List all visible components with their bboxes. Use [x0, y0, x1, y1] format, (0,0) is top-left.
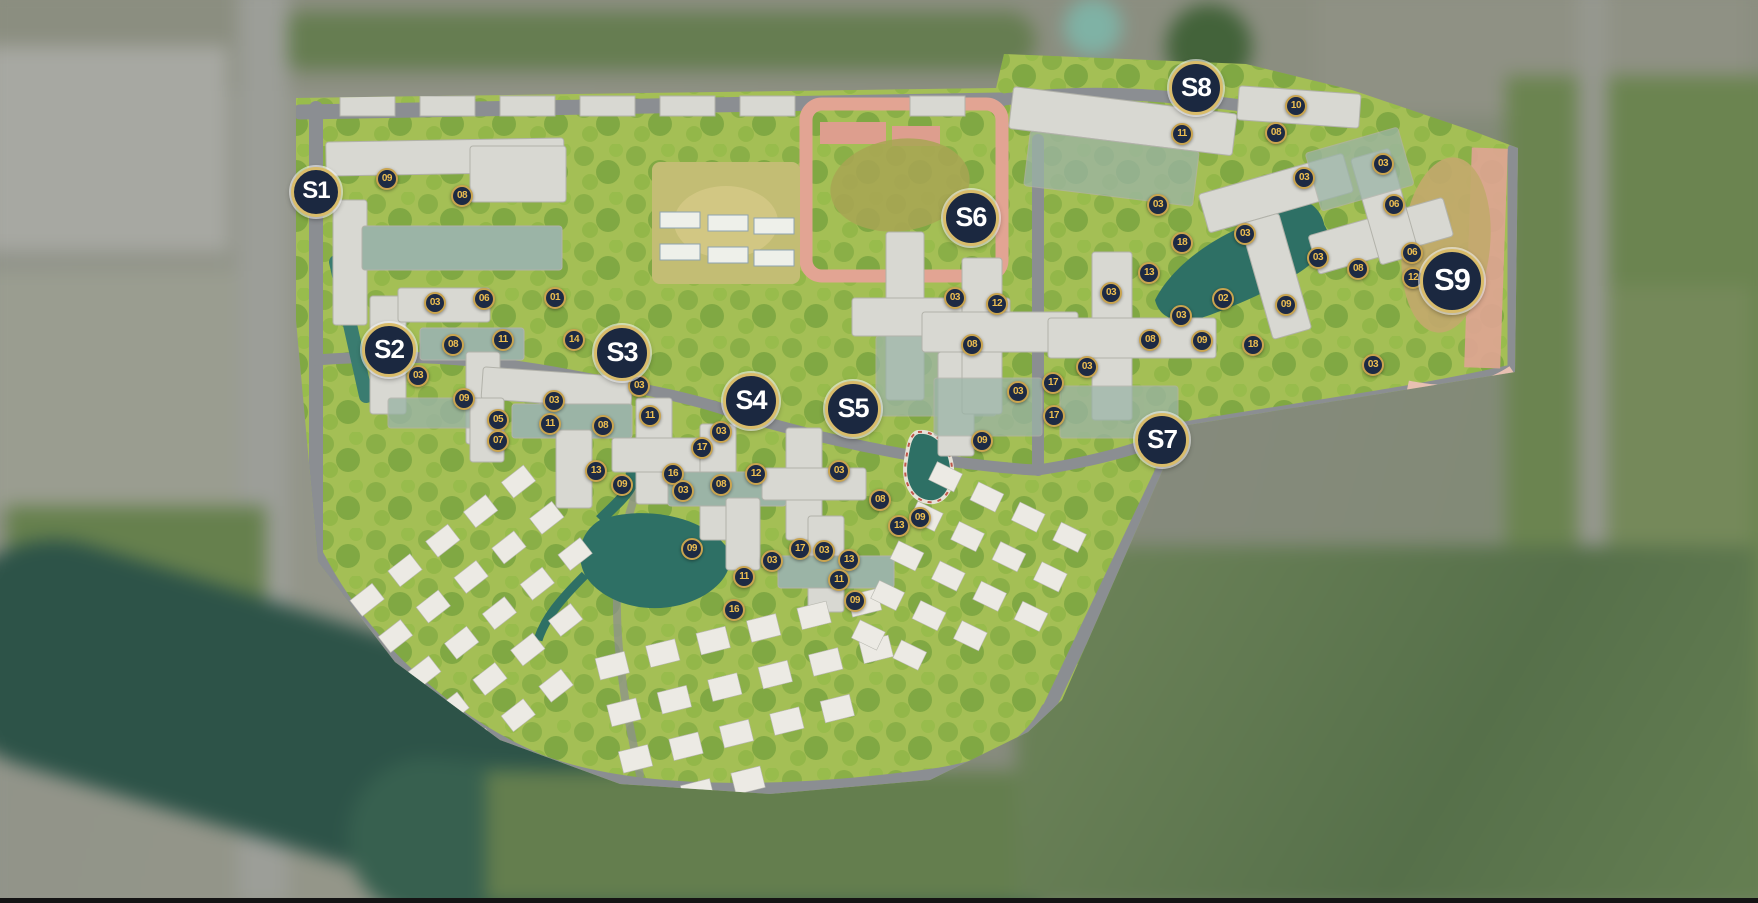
building-marker-03-10[interactable]: 03 [543, 390, 565, 412]
building-marker-18-43[interactable]: 18 [1171, 232, 1193, 254]
building-marker-11-36[interactable]: 11 [733, 566, 755, 588]
building-marker-03-59[interactable]: 03 [1307, 247, 1329, 269]
building-marker-03-40[interactable]: 03 [944, 287, 966, 309]
building-marker-11-6[interactable]: 11 [492, 329, 514, 351]
sector-marker-s4[interactable]: S4 [723, 373, 779, 429]
building-marker-13-44[interactable]: 13 [1138, 262, 1160, 284]
building-marker-09-27[interactable]: 09 [971, 430, 993, 452]
building-marker-13-29[interactable]: 13 [888, 515, 910, 537]
building-marker-01-4[interactable]: 01 [544, 287, 566, 309]
masterplan-canvas: 0908030601081114030903051108070311031713… [0, 0, 1758, 903]
building-marker-09-22[interactable]: 09 [611, 474, 633, 496]
sector-marker-s2[interactable]: S2 [362, 323, 416, 377]
building-marker-07-14[interactable]: 07 [487, 430, 509, 452]
building-marker-03-55[interactable]: 03 [1293, 167, 1315, 189]
markers-layer: 0908030601081114030903051108070311031713… [0, 0, 1758, 903]
building-marker-03-56[interactable]: 03 [1372, 153, 1394, 175]
building-marker-13-19[interactable]: 13 [585, 460, 607, 482]
building-marker-03-25[interactable]: 03 [828, 460, 850, 482]
sector-marker-s7[interactable]: S7 [1135, 413, 1189, 467]
building-marker-12-41[interactable]: 12 [986, 293, 1008, 315]
image-bottom-edge [0, 898, 1758, 903]
building-marker-03-2[interactable]: 03 [424, 292, 446, 314]
building-marker-08-46[interactable]: 08 [1139, 329, 1161, 351]
building-marker-17-48[interactable]: 17 [1042, 372, 1064, 394]
building-marker-11-16[interactable]: 11 [639, 405, 661, 427]
building-marker-14-7[interactable]: 14 [563, 329, 585, 351]
building-marker-03-58[interactable]: 03 [1234, 223, 1256, 245]
building-marker-06-57[interactable]: 06 [1383, 194, 1405, 216]
building-marker-03-17[interactable]: 03 [710, 421, 732, 443]
building-marker-03-67[interactable]: 03 [1362, 354, 1384, 376]
building-marker-05-11[interactable]: 05 [487, 409, 509, 431]
building-marker-03-42[interactable]: 03 [1100, 282, 1122, 304]
building-marker-12-21[interactable]: 12 [745, 463, 767, 485]
building-marker-08-5[interactable]: 08 [442, 334, 464, 356]
building-marker-09-33[interactable]: 09 [681, 538, 703, 560]
building-marker-08-26[interactable]: 08 [961, 334, 983, 356]
building-marker-03-47[interactable]: 03 [1076, 356, 1098, 378]
building-marker-08-13[interactable]: 08 [592, 415, 614, 437]
sector-marker-s5[interactable]: S5 [825, 381, 881, 437]
sector-marker-s8[interactable]: S8 [1169, 61, 1223, 115]
building-marker-03-52[interactable]: 03 [1147, 194, 1169, 216]
building-marker-03-45[interactable]: 03 [1170, 305, 1192, 327]
sector-marker-s9[interactable]: S9 [1420, 249, 1484, 313]
building-marker-03-32[interactable]: 03 [813, 540, 835, 562]
building-marker-03-49[interactable]: 03 [1007, 381, 1029, 403]
building-marker-08-1[interactable]: 08 [451, 185, 473, 207]
building-marker-08-61[interactable]: 08 [1347, 258, 1369, 280]
building-marker-09-65[interactable]: 09 [1191, 330, 1213, 352]
building-marker-17-18[interactable]: 17 [691, 437, 713, 459]
building-marker-09-38[interactable]: 09 [844, 590, 866, 612]
building-marker-08-28[interactable]: 08 [869, 489, 891, 511]
sector-marker-s6[interactable]: S6 [943, 190, 999, 246]
building-marker-09-0[interactable]: 09 [376, 168, 398, 190]
building-marker-03-34[interactable]: 03 [761, 550, 783, 572]
building-marker-03-24[interactable]: 03 [672, 480, 694, 502]
building-marker-11-12[interactable]: 11 [539, 413, 561, 435]
building-marker-06-60[interactable]: 06 [1401, 242, 1423, 264]
building-marker-06-3[interactable]: 06 [473, 288, 495, 310]
building-marker-08-23[interactable]: 08 [710, 474, 732, 496]
building-marker-10-53[interactable]: 10 [1285, 95, 1307, 117]
building-marker-09-9[interactable]: 09 [453, 388, 475, 410]
building-marker-08-54[interactable]: 08 [1265, 122, 1287, 144]
building-marker-17-50[interactable]: 17 [1043, 405, 1065, 427]
building-marker-17-31[interactable]: 17 [789, 538, 811, 560]
building-marker-02-63[interactable]: 02 [1212, 288, 1234, 310]
building-marker-13-35[interactable]: 13 [838, 549, 860, 571]
sector-marker-s1[interactable]: S1 [291, 167, 341, 217]
sector-marker-s3[interactable]: S3 [594, 325, 650, 381]
building-marker-11-51[interactable]: 11 [1171, 123, 1193, 145]
building-marker-03-8[interactable]: 03 [407, 365, 429, 387]
building-marker-09-30[interactable]: 09 [909, 507, 931, 529]
building-marker-09-64[interactable]: 09 [1275, 294, 1297, 316]
building-marker-11-37[interactable]: 11 [828, 569, 850, 591]
building-marker-16-39[interactable]: 16 [723, 599, 745, 621]
building-marker-18-66[interactable]: 18 [1242, 334, 1264, 356]
